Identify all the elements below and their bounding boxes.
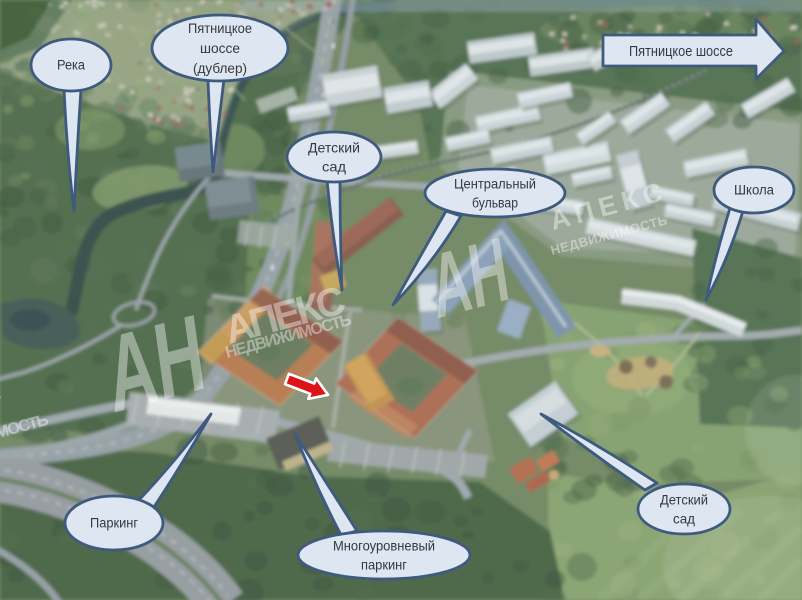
svg-text:бульвар: бульвар [472,194,518,210]
svg-text:Школа: Школа [734,183,774,198]
svg-text:Детский: Детский [308,139,360,155]
svg-text:Детский: Детский [660,491,708,507]
svg-text:Пятницкое шоссе: Пятницкое шоссе [629,43,733,60]
svg-text:сад: сад [322,158,346,174]
svg-text:шоссе: шоссе [200,40,240,56]
svg-text:Пятницкое: Пятницкое [188,20,252,36]
svg-text:сад: сад [673,510,695,526]
svg-text:Паркинг: Паркинг [90,516,138,531]
svg-text:паркинг: паркинг [361,556,407,572]
svg-text:Многоуровневый: Многоуровневый [333,537,435,553]
svg-text:Река: Река [57,58,85,73]
svg-text:Центральный: Центральный [454,175,536,191]
svg-text:(дублер): (дублер) [193,60,247,76]
